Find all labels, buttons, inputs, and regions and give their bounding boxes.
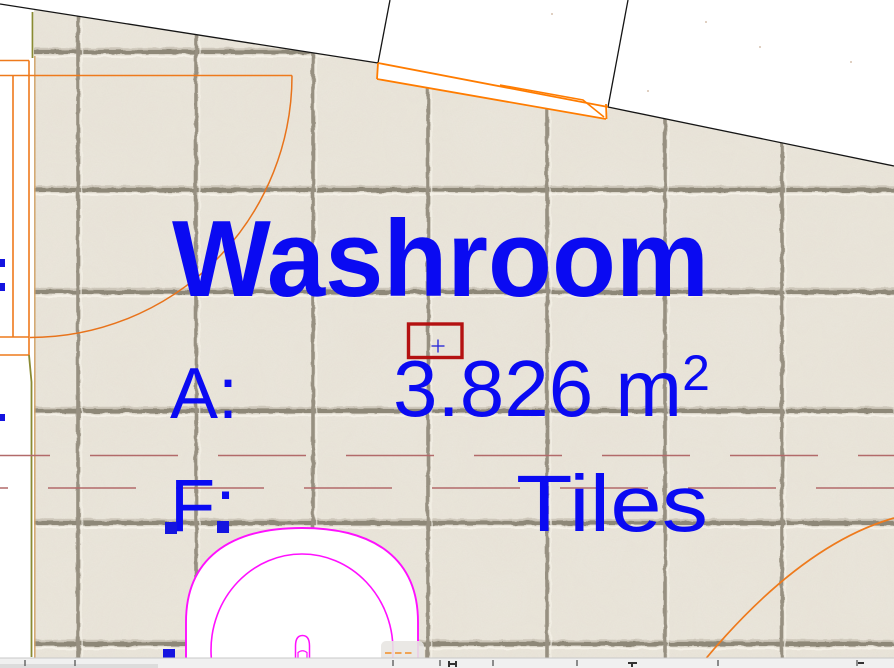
viewport-bottom-strip [0, 658, 894, 668]
area-superscript: 2 [682, 345, 710, 401]
drawing-canvas[interactable]: Washroom A: 3.826 m2 F: Tiles [0, 0, 894, 668]
room-name-label[interactable]: Washroom [172, 198, 709, 320]
finish-label: F: [170, 464, 236, 547]
grip-handle[interactable] [165, 522, 177, 534]
area-label: A: [170, 354, 238, 434]
finish-value: Tiles [516, 459, 708, 548]
grip-handle[interactable] [217, 521, 229, 533]
floor-plan-svg: Washroom A: 3.826 m2 F: Tiles [0, 0, 894, 668]
